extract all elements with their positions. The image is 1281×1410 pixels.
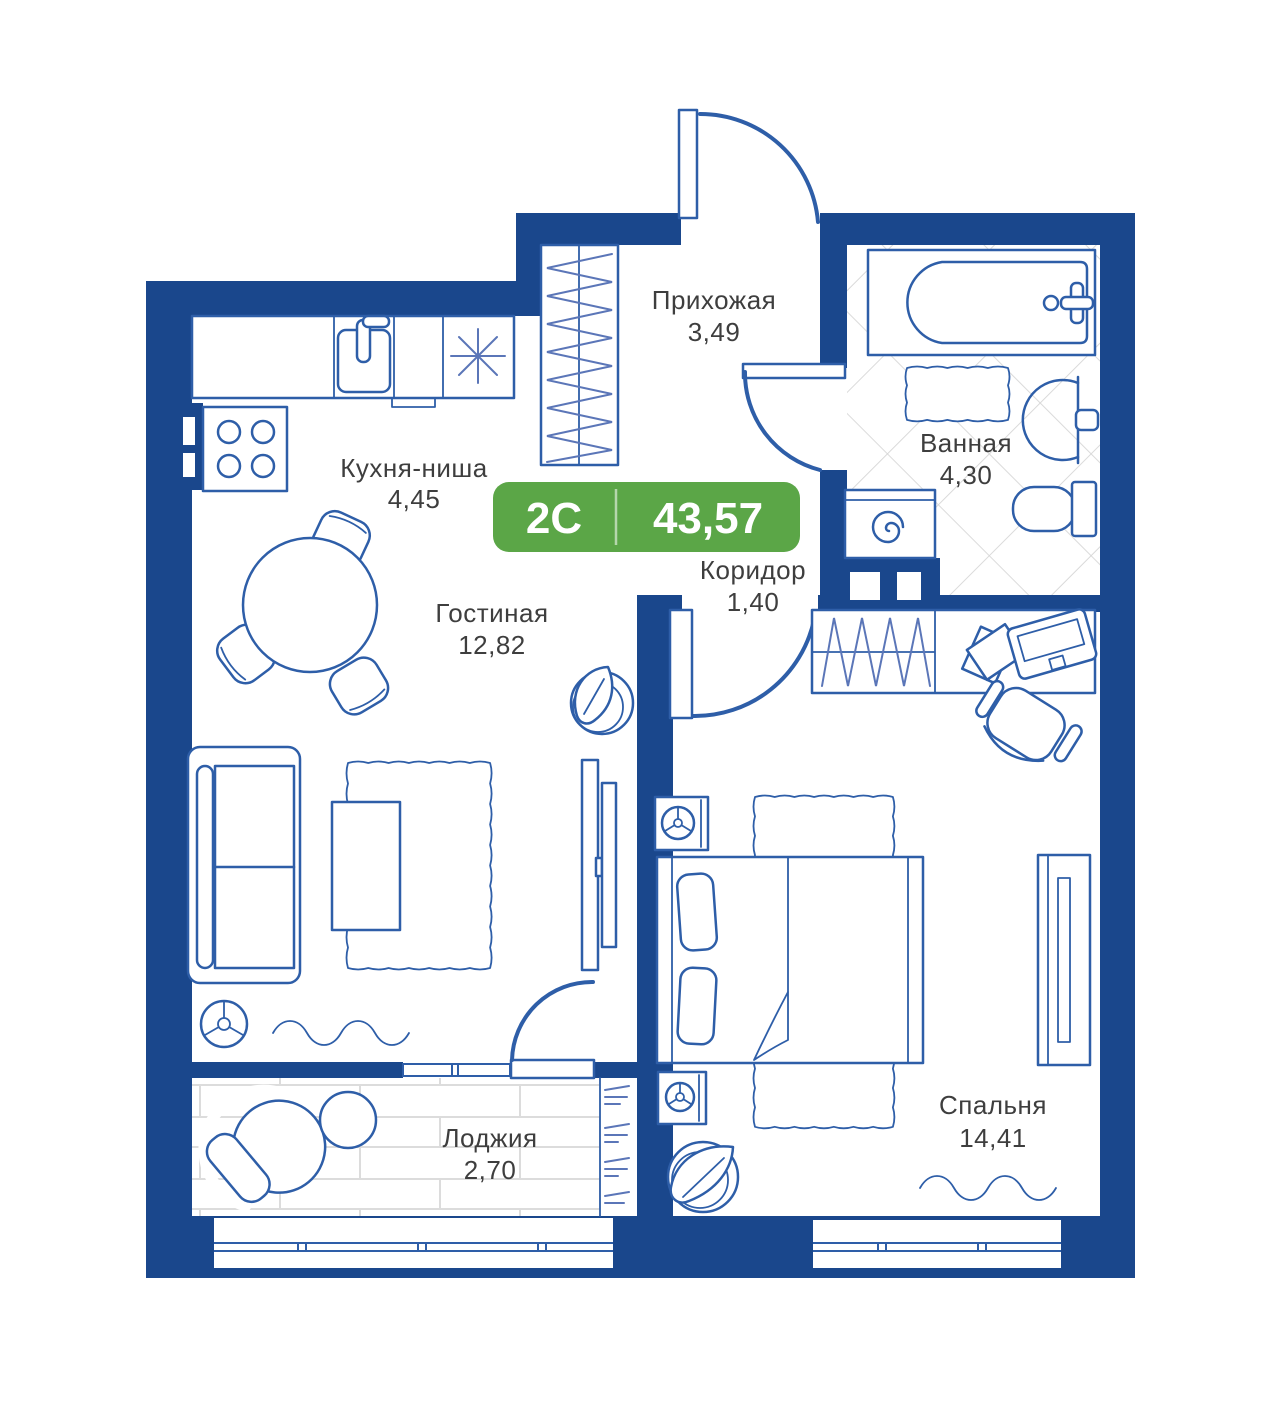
room-label-kitchen: Кухня-ниша 4,45 [340, 453, 487, 514]
washing-machine [845, 490, 935, 558]
toilet [1013, 482, 1096, 536]
room-name: Гостиная [435, 598, 548, 628]
tv-unit [582, 760, 616, 970]
room-area: 12,82 [458, 630, 526, 660]
room-name: Лоджия [442, 1123, 537, 1153]
room-area: 3,49 [688, 317, 741, 347]
loggia-side-glazing [600, 1078, 629, 1216]
coffee-table [332, 802, 400, 930]
room-name: Ванная [920, 428, 1012, 458]
loggia-table [320, 1092, 376, 1148]
bedroom-closet [1038, 855, 1090, 1065]
room-label-corridor: Коридор 1,40 [700, 555, 806, 617]
room-area: 4,30 [940, 460, 993, 490]
dining-table [243, 538, 377, 672]
hall-wardrobe [541, 245, 618, 465]
room-area: 2,70 [464, 1155, 517, 1185]
sofa [188, 747, 300, 983]
bedroom-door [670, 610, 814, 718]
balcony-door [511, 982, 594, 1078]
room-name: Кухня-ниша [340, 453, 487, 483]
room-label-living: Гостиная 12,82 [435, 598, 548, 660]
bathtub [868, 250, 1095, 355]
room-area: 4,45 [388, 484, 441, 514]
living-radiator [273, 1021, 409, 1045]
ac-unit [658, 1072, 706, 1124]
room-area: 14,41 [959, 1123, 1027, 1153]
hob-icon [451, 329, 505, 383]
balcony-window [403, 1064, 510, 1076]
room-name: Прихожая [652, 285, 776, 315]
bed-pillow [677, 967, 717, 1045]
kitchen-sink [338, 316, 390, 392]
floor-plan: Прихожая 3,49 Ванная 4,30 Кухня-ниша 4,4… [0, 0, 1281, 1410]
plant-icon [571, 667, 633, 734]
bedroom-radiator [920, 1176, 1056, 1200]
ac-unit [655, 797, 708, 850]
plant-icon [668, 1142, 738, 1212]
badge-area: 43,57 [653, 494, 763, 543]
badge-type: 2С [526, 494, 582, 543]
bed [657, 857, 923, 1063]
room-area: 1,40 [727, 587, 780, 617]
bed-pillow [676, 873, 717, 951]
room-label-bedroom: Спальня 14,41 [939, 1090, 1047, 1153]
room-name: Спальня [939, 1090, 1047, 1120]
entry-door [679, 110, 818, 222]
kitchen-stove [203, 407, 287, 491]
plan-badge: 2С 43,57 [493, 482, 800, 552]
floor-plan-svg: Прихожая 3,49 Ванная 4,30 Кухня-ниша 4,4… [0, 0, 1281, 1410]
room-name: Коридор [700, 555, 806, 585]
bathroom-door [743, 364, 845, 470]
fan-icon [201, 1001, 247, 1047]
bath-mat [906, 367, 1010, 422]
room-label-hallway: Прихожая 3,49 [652, 285, 776, 347]
